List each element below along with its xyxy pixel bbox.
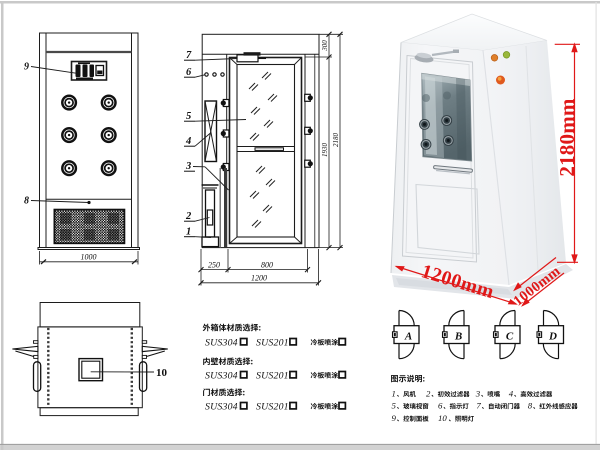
svg-text:1000: 1000: [81, 253, 97, 262]
svg-text:C: C: [506, 331, 514, 343]
svg-text:1: 1: [392, 388, 396, 398]
svg-text:6: 6: [438, 401, 443, 411]
svg-text:300: 300: [321, 40, 329, 52]
svg-text:8: 8: [24, 196, 29, 207]
svg-text:1: 1: [186, 227, 191, 238]
svg-text:SUS304: SUS304: [205, 337, 238, 348]
svg-text:7: 7: [476, 401, 481, 411]
svg-text:3: 3: [185, 161, 191, 172]
svg-text:800: 800: [261, 260, 273, 269]
svg-text:5: 5: [392, 401, 397, 411]
svg-text:SUS201: SUS201: [256, 370, 289, 381]
svg-text:4: 4: [509, 388, 514, 398]
svg-text:9: 9: [24, 62, 29, 73]
svg-text:1200: 1200: [251, 274, 267, 283]
svg-text:6: 6: [186, 67, 192, 78]
svg-text:2: 2: [185, 211, 192, 222]
svg-text:2: 2: [426, 388, 431, 398]
svg-text:SUS304: SUS304: [205, 370, 238, 381]
svg-text:2180mm: 2180mm: [555, 98, 579, 176]
svg-text:SUS201: SUS201: [256, 401, 289, 412]
svg-text:A: A: [404, 331, 412, 343]
svg-text:9: 9: [392, 413, 397, 423]
svg-text:SUS304: SUS304: [205, 401, 238, 412]
svg-text:10: 10: [156, 367, 168, 379]
svg-text:SUS201: SUS201: [256, 337, 289, 348]
svg-text:2180: 2180: [332, 133, 340, 148]
svg-text:5: 5: [186, 111, 191, 122]
svg-text:1930: 1930: [321, 143, 329, 158]
svg-text:B: B: [454, 331, 462, 343]
svg-text:8: 8: [528, 401, 533, 411]
svg-text:3: 3: [475, 388, 481, 398]
svg-text:7: 7: [186, 50, 192, 61]
svg-text:250: 250: [208, 260, 220, 269]
svg-text:10: 10: [438, 413, 447, 423]
svg-text:4: 4: [185, 136, 191, 147]
svg-text:D: D: [548, 331, 557, 343]
